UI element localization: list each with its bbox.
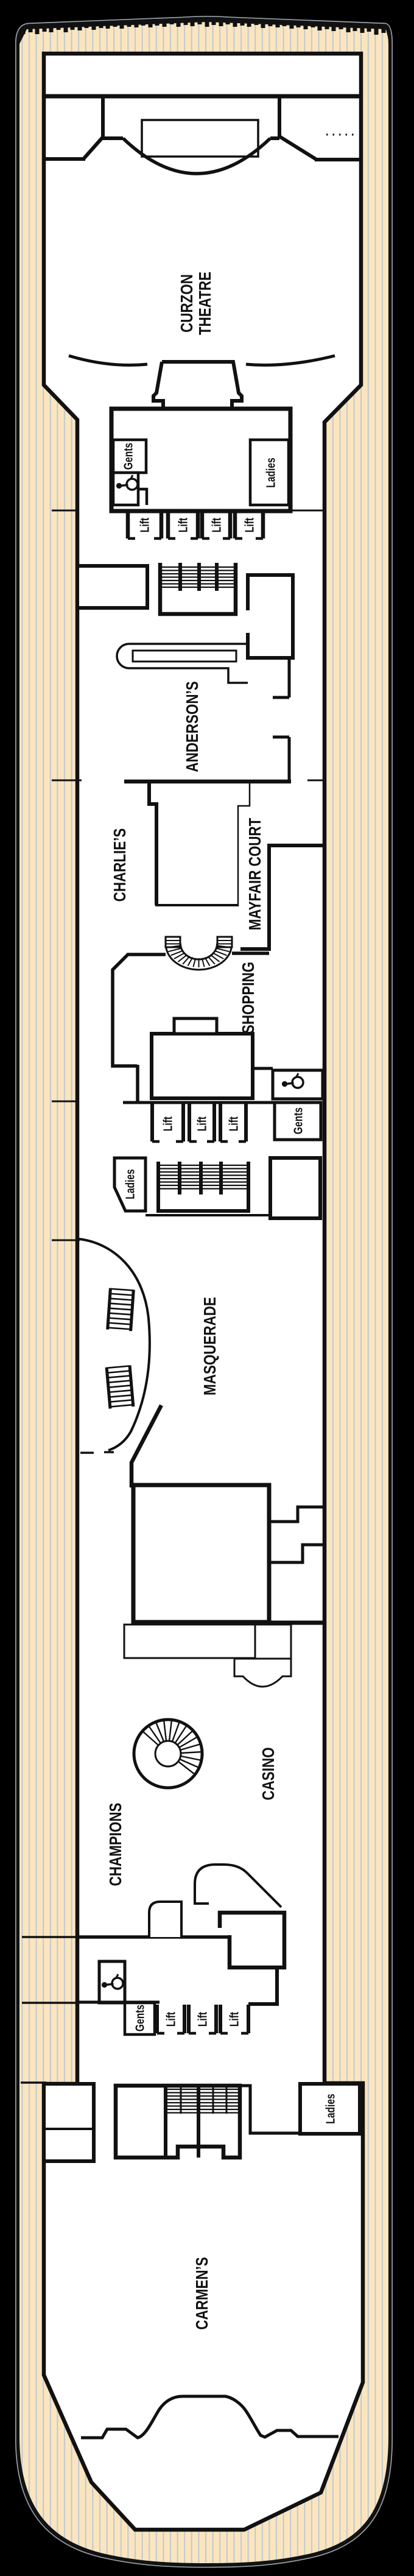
svg-text:SHOPPING: SHOPPING — [239, 962, 258, 1034]
svg-text:THEATRE: THEATRE — [196, 272, 215, 335]
svg-text:Lift: Lift — [210, 518, 223, 532]
svg-text:Lift: Lift — [195, 1117, 209, 1131]
svg-text:CASINO: CASINO — [259, 1747, 278, 1800]
svg-text:CHAMPIONS: CHAMPIONS — [107, 1803, 125, 1886]
svg-text:Lift: Lift — [161, 1117, 175, 1131]
svg-text:Lift: Lift — [164, 2012, 178, 2027]
svg-text:Lift: Lift — [227, 1117, 240, 1131]
svg-text:Gents: Gents — [133, 2005, 147, 2031]
svg-text:MAYFAIR COURT: MAYFAIR COURT — [246, 817, 265, 930]
svg-text:Lift: Lift — [228, 2012, 241, 2027]
svg-text:CURZON: CURZON — [178, 274, 197, 333]
svg-text:Gents: Gents — [122, 443, 135, 470]
svg-text:CHARLIE’S: CHARLIE’S — [111, 828, 130, 902]
svg-text:MASQUERADE: MASQUERADE — [201, 1297, 220, 1396]
svg-text:Lift: Lift — [177, 518, 190, 532]
svg-text:ANDERSON’S: ANDERSON’S — [183, 681, 202, 772]
svg-text:Ladies: Ladies — [124, 1169, 137, 1199]
svg-text:Ladies: Ladies — [264, 457, 278, 487]
svg-text:Lift: Lift — [196, 2012, 209, 2027]
svg-text:Ladies: Ladies — [324, 2094, 337, 2123]
svg-text:CARMEN’S: CARMEN’S — [193, 2257, 212, 2329]
svg-text:Lift: Lift — [243, 518, 256, 532]
svg-text:Lift: Lift — [138, 518, 152, 532]
svg-text:Gents: Gents — [292, 1107, 305, 1134]
